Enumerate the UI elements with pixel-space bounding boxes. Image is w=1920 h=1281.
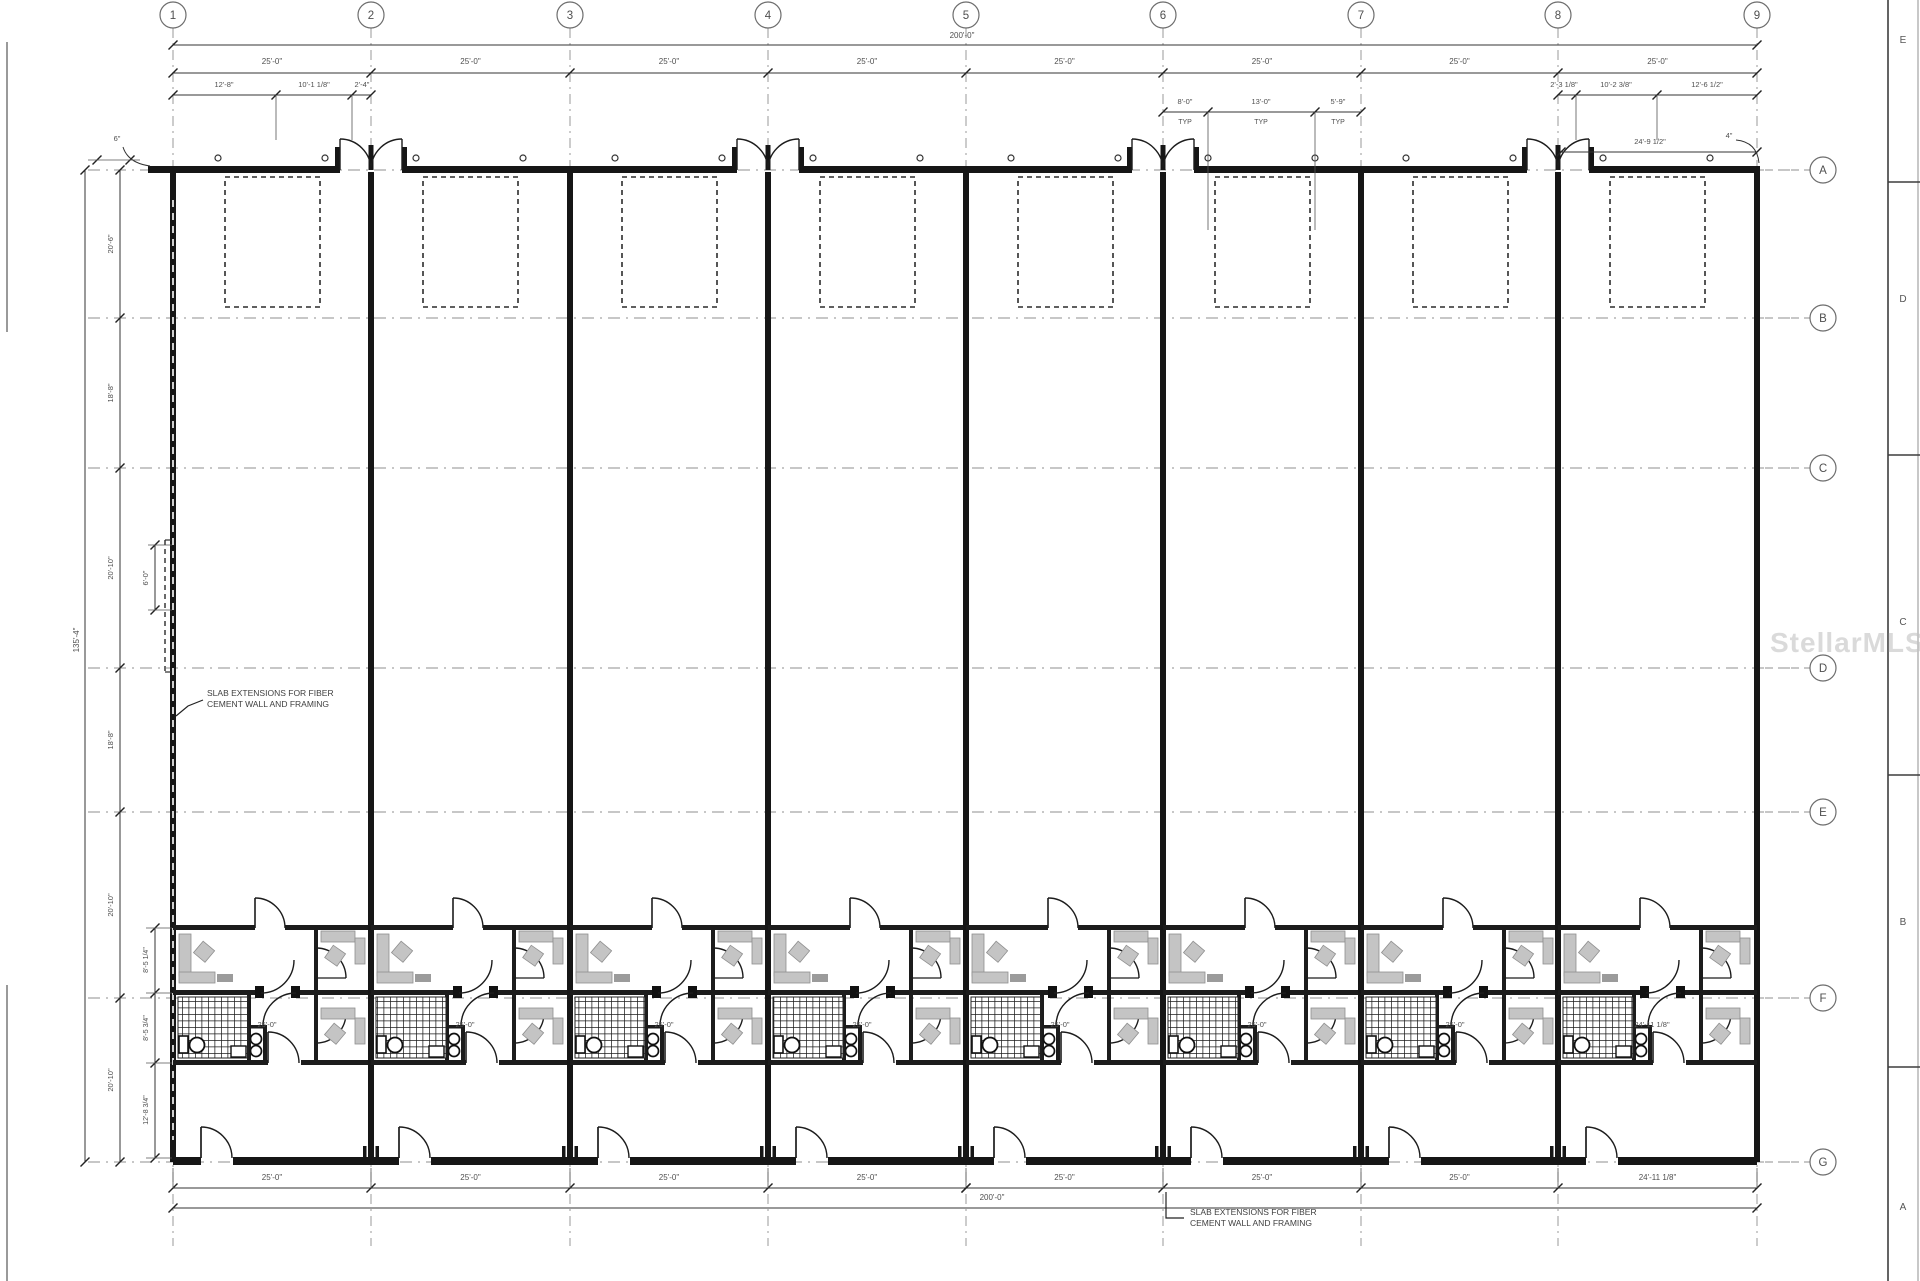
desk — [576, 934, 588, 976]
column-grid-label: 2 — [368, 10, 374, 22]
mezzanine-dashed-outline — [1413, 177, 1508, 307]
chair — [1183, 941, 1204, 962]
chair — [391, 941, 412, 962]
toilet — [587, 1038, 602, 1053]
desk — [972, 972, 1008, 983]
mezzanine-dashed-outline — [820, 177, 915, 307]
bottom-total-dim: 200'-0" — [980, 1193, 1005, 1202]
water-heater — [648, 1046, 659, 1057]
rear-double-doors — [335, 139, 1594, 170]
toilet-tank — [1564, 1036, 1573, 1053]
toilet — [190, 1038, 205, 1053]
water-heater — [1636, 1046, 1647, 1057]
bottom-bay-dim: 25'-0" — [460, 1173, 481, 1182]
desk — [179, 934, 191, 976]
cabinet — [1345, 1018, 1355, 1044]
desk — [1169, 972, 1205, 983]
row-grid-label: F — [1819, 993, 1826, 1005]
chair — [788, 941, 809, 962]
cabinet — [553, 1018, 563, 1044]
unit-width-label: 25'-0" — [1050, 1020, 1069, 1029]
front-wall — [363, 1127, 570, 1165]
cabinet — [1740, 938, 1750, 964]
floor-plan-drawing: 123456789ABCDEFGEDCBAStellarMLS25'-0"25'… — [0, 0, 1920, 1281]
row-grid-label: C — [1819, 463, 1827, 475]
bottom-bay-dim: 24'-11 1/8" — [1639, 1173, 1677, 1182]
edge-strip-letter: D — [1899, 294, 1906, 305]
inner-dim: 8'-5 1/4" — [143, 947, 150, 973]
left-bay-dim: 18'-8" — [106, 383, 115, 402]
unit-width-label: 25'-0" — [1247, 1020, 1266, 1029]
desk — [1114, 1008, 1148, 1019]
desk — [774, 972, 810, 983]
water-heater — [846, 1046, 857, 1057]
desk — [1564, 934, 1576, 976]
front-wall — [1155, 1127, 1361, 1165]
cabinet — [1543, 1018, 1553, 1044]
unit-plan: 25'-0" — [1155, 155, 1361, 1165]
typ-suffix: TYP — [1178, 119, 1192, 126]
cabinet — [1543, 938, 1553, 964]
printer — [812, 974, 828, 982]
bottom-bay-dim: 25'-0" — [1252, 1173, 1273, 1182]
roof-drain-circle — [719, 155, 725, 161]
cabinet — [1740, 1018, 1750, 1044]
roof-drain-circle — [612, 155, 618, 161]
water-heater — [1044, 1046, 1055, 1057]
roof-drain-circle — [810, 155, 816, 161]
bottom-bay-dim: 25'-0" — [659, 1173, 680, 1182]
toilet — [785, 1038, 800, 1053]
printer — [1405, 974, 1421, 982]
front-wall — [1550, 1127, 1757, 1165]
sub-dim: 12'-6 1/2" — [1691, 80, 1723, 89]
left-total-dim: 135'-4" — [72, 627, 81, 652]
water-heater — [251, 1034, 262, 1045]
inner-dim: 8'-5 3/4" — [143, 1015, 150, 1041]
toilet — [1378, 1038, 1393, 1053]
row-grid-bubble: G — [1765, 1149, 1836, 1175]
sink — [429, 1046, 444, 1057]
left-bay-dim: 20'-10" — [106, 1068, 115, 1092]
toilet — [1180, 1038, 1195, 1053]
cabinet — [1148, 1018, 1158, 1044]
left-bay-dim: 18'-8" — [106, 730, 115, 749]
mezzanine-dashed-outline — [225, 177, 320, 307]
desk — [576, 972, 612, 983]
sink — [231, 1046, 246, 1057]
desk — [377, 972, 413, 983]
water-heater — [1044, 1034, 1055, 1045]
cabinet — [950, 1018, 960, 1044]
unit-plan: 25'-0" — [363, 155, 570, 1165]
roof-drain-circle — [1008, 155, 1014, 161]
unit-plan: 25'-0" — [562, 155, 768, 1165]
sink — [1221, 1046, 1236, 1057]
desk — [1311, 1008, 1345, 1019]
unit-width-label: 25'-0" — [257, 1020, 276, 1029]
row-grid-bubble: B — [1765, 305, 1836, 331]
toilet-tank — [1169, 1036, 1178, 1053]
column-grid-bubble: 7 — [1348, 2, 1374, 28]
column-grid-label: 7 — [1358, 10, 1364, 22]
column-grid-bubble: 2 — [358, 2, 384, 28]
sub-dim: 10'-2 3/8" — [1600, 80, 1632, 89]
desk — [1169, 934, 1181, 976]
sub-dim-typ: 5'-9" — [1331, 97, 1346, 106]
desk — [1311, 931, 1345, 942]
corner-callout: 6" — [114, 134, 121, 143]
note-slab-extensions-bottom: SLAB EXTENSIONS FOR FIBERCEMENT WALL AND… — [1166, 1192, 1317, 1228]
column-grid-label: 9 — [1754, 10, 1760, 22]
desk — [321, 931, 355, 942]
bottom-bay-dim: 25'-0" — [1449, 1173, 1470, 1182]
unit-plan: 25'-0" — [1353, 155, 1558, 1165]
top-bay-dim: 25'-0" — [262, 57, 283, 66]
sub-dim-typ: 8'-0" — [1178, 97, 1193, 106]
note-text: SLAB EXTENSIONS FOR FIBER — [1190, 1207, 1317, 1217]
sink — [628, 1046, 643, 1057]
corner-dim: 24'-9 1/2" — [1634, 137, 1666, 146]
printer — [415, 974, 431, 982]
row-grid-bubble: F — [1765, 985, 1836, 1011]
left-bay-dim: 20'-6" — [106, 234, 115, 253]
water-heater — [1636, 1034, 1647, 1045]
roof-drain-circle — [1600, 155, 1606, 161]
water-heater — [251, 1046, 262, 1057]
desk — [718, 1008, 752, 1019]
watermark: StellarMLS — [1770, 627, 1920, 658]
cabinet — [752, 1018, 762, 1044]
desk — [916, 1008, 950, 1019]
water-heater — [449, 1034, 460, 1045]
unit-width-label: 25'-0" — [1445, 1020, 1464, 1029]
desk — [1706, 1008, 1740, 1019]
toilet-tank — [576, 1036, 585, 1053]
edge-strip-letter: A — [1900, 1202, 1907, 1213]
column-grid-bubble: 4 — [755, 2, 781, 28]
unit-width-label: 25'-0" — [455, 1020, 474, 1029]
top-bay-dim: 25'-0" — [857, 57, 878, 66]
left-dimensions: 135'-4"20'-6"18'-8"20'-10"18'-8"20'-10"2… — [72, 166, 172, 1167]
inner-dim: 6'-0" — [141, 570, 150, 585]
column-grid-label: 5 — [963, 10, 969, 22]
column-grid-bubble: 6 — [1150, 2, 1176, 28]
roof-drain-circle — [322, 155, 328, 161]
toilet — [983, 1038, 998, 1053]
column-grid-bubble: 8 — [1545, 2, 1571, 28]
toilet — [1575, 1038, 1590, 1053]
desk — [321, 1008, 355, 1019]
note-text: SLAB EXTENSIONS FOR FIBER — [207, 688, 334, 698]
notes: SLAB EXTENSIONS FOR FIBERCEMENT WALL AND… — [176, 688, 1317, 1228]
unit-width-label: 25'-0" — [654, 1020, 673, 1029]
desk — [519, 931, 553, 942]
cabinet — [355, 938, 365, 964]
water-heater — [648, 1034, 659, 1045]
desk — [179, 972, 215, 983]
mezzanine-dashed-outline — [1018, 177, 1113, 307]
top-total-dim: 200'-0" — [950, 31, 975, 40]
water-heater — [449, 1046, 460, 1057]
toilet-tank — [972, 1036, 981, 1053]
toilet-tank — [774, 1036, 783, 1053]
water-heater — [846, 1034, 857, 1045]
mezzanine-dashed-outline — [1215, 177, 1310, 307]
desk — [916, 931, 950, 942]
column-grid-bubble: 5 — [953, 2, 979, 28]
column-grid-label: 6 — [1160, 10, 1166, 22]
top-bay-dim: 25'-0" — [1647, 57, 1668, 66]
cabinet — [752, 938, 762, 964]
top-bay-dim: 25'-0" — [460, 57, 481, 66]
top-bay-dim: 25'-0" — [1054, 57, 1075, 66]
desk — [1367, 972, 1403, 983]
left-bay-dim: 20'-10" — [106, 556, 115, 580]
chair — [1578, 941, 1599, 962]
chair — [590, 941, 611, 962]
unit-width-label: 24'-11 1/8" — [1634, 1020, 1670, 1029]
typ-suffix: TYP — [1331, 119, 1345, 126]
water-heater — [1241, 1034, 1252, 1045]
chair — [1381, 941, 1402, 962]
water-heater — [1439, 1034, 1450, 1045]
desk — [1564, 972, 1600, 983]
note-text: CEMENT WALL AND FRAMING — [207, 699, 329, 709]
toilet-tank — [179, 1036, 188, 1053]
sink — [1616, 1046, 1631, 1057]
roof-drain-circle — [215, 155, 221, 161]
roof-drain-circle — [413, 155, 419, 161]
desk — [774, 934, 786, 976]
printer — [1207, 974, 1223, 982]
units: 25'-0"25'-0"25'-0"25'-0"25'-0"25'-0"25'-… — [173, 155, 1757, 1165]
edge-strip-letter: E — [1900, 35, 1907, 46]
front-wall — [562, 1127, 768, 1165]
desk — [377, 934, 389, 976]
watermark-text: StellarMLS — [1770, 627, 1920, 658]
column-grid-bubble: 3 — [557, 2, 583, 28]
toilet-tank — [377, 1036, 386, 1053]
front-wall — [173, 1127, 371, 1165]
desk — [972, 934, 984, 976]
printer — [614, 974, 630, 982]
unit-plan: 25'-0" — [173, 155, 371, 1165]
top-bay-dim: 25'-0" — [1252, 57, 1273, 66]
printer — [1010, 974, 1026, 982]
sub-dim: 2'-3 1/8" — [1550, 80, 1578, 89]
roof-drain-circle — [1403, 155, 1409, 161]
printer — [1602, 974, 1618, 982]
desk — [1509, 1008, 1543, 1019]
sub-dim: 12'-8" — [214, 80, 233, 89]
row-grid-label: D — [1819, 663, 1827, 675]
bottom-bay-dim: 25'-0" — [1054, 1173, 1075, 1182]
desk — [1706, 931, 1740, 942]
corner-callout: 4" — [1726, 131, 1733, 140]
roof-drain-circle — [1115, 155, 1121, 161]
mezzanine-dashed-outline — [423, 177, 518, 307]
row-grid-bubble: D — [1765, 655, 1836, 681]
desk — [1509, 931, 1543, 942]
typ-suffix: TYP — [1254, 119, 1268, 126]
column-grid-label: 4 — [765, 10, 772, 22]
sink — [826, 1046, 841, 1057]
front-wall — [1353, 1127, 1558, 1165]
cabinet — [1148, 938, 1158, 964]
note-text: CEMENT WALL AND FRAMING — [1190, 1218, 1312, 1228]
top-dimensions: 200'-0"25'-0"25'-0"25'-0"25'-0"25'-0"25'… — [88, 31, 1762, 230]
row-grid-label: A — [1819, 165, 1827, 177]
note-slab-extensions-left: SLAB EXTENSIONS FOR FIBERCEMENT WALL AND… — [176, 688, 334, 716]
sub-dim-typ: 13'-0" — [1251, 97, 1270, 106]
row-grid-label: B — [1819, 313, 1827, 325]
row-grid-bubble: A — [1765, 157, 1836, 183]
top-bay-dim: 25'-0" — [1449, 57, 1470, 66]
row-grid-label: G — [1819, 1157, 1828, 1169]
sink — [1419, 1046, 1434, 1057]
column-grid-bubble: 9 — [1744, 2, 1770, 28]
unit-plan: 25'-0" — [760, 155, 966, 1165]
roof-drain-circle — [1707, 155, 1713, 161]
column-grid-label: 8 — [1555, 10, 1561, 22]
roof-drain-circle — [520, 155, 526, 161]
top-bay-dim: 25'-0" — [659, 57, 680, 66]
row-grid-label: E — [1819, 807, 1827, 819]
sub-dim: 10'-1 1/8" — [298, 80, 330, 89]
column-grid-label: 3 — [567, 10, 573, 22]
cabinet — [553, 938, 563, 964]
chair — [193, 941, 214, 962]
column-grid-bubble: 1 — [160, 2, 186, 28]
row-grid-bubble: C — [1765, 455, 1836, 481]
unit-plan: 24'-11 1/8" — [1550, 155, 1757, 1165]
inner-dim: 12'-8 3/4" — [143, 1095, 150, 1125]
cabinet — [355, 1018, 365, 1044]
roof-drain-circle — [1510, 155, 1516, 161]
mezzanine-dashed-outline — [1610, 177, 1705, 307]
unit-width-label: 25'-0" — [852, 1020, 871, 1029]
water-heater — [1241, 1046, 1252, 1057]
row-grid-bubble: E — [1765, 799, 1836, 825]
toilet — [388, 1038, 403, 1053]
chair — [986, 941, 1007, 962]
unit-plan: 25'-0" — [958, 155, 1163, 1165]
desk — [519, 1008, 553, 1019]
bottom-bay-dim: 25'-0" — [857, 1173, 878, 1182]
desk — [1367, 934, 1379, 976]
sink — [1024, 1046, 1039, 1057]
floor-plan-sheet: 123456789ABCDEFGEDCBAStellarMLS25'-0"25'… — [0, 0, 1920, 1281]
desk — [718, 931, 752, 942]
desk — [1114, 931, 1148, 942]
printer — [217, 974, 233, 982]
bottom-bay-dim: 25'-0" — [262, 1173, 283, 1182]
roof-drain-circle — [917, 155, 923, 161]
water-heater — [1439, 1046, 1450, 1057]
front-wall — [760, 1127, 966, 1165]
edge-strip-letter: B — [1900, 917, 1907, 928]
left-bay-dim: 20'-10" — [106, 893, 115, 917]
toilet-tank — [1367, 1036, 1376, 1053]
sub-dim: 2'-4" — [355, 80, 370, 89]
mezzanine-dashed-outline — [622, 177, 717, 307]
cabinet — [1345, 938, 1355, 964]
cabinet — [950, 938, 960, 964]
front-wall — [958, 1127, 1163, 1165]
column-grid-label: 1 — [170, 10, 176, 22]
bottom-dimensions: 25'-0"25'-0"25'-0"25'-0"25'-0"25'-0"25'-… — [169, 1168, 1762, 1213]
